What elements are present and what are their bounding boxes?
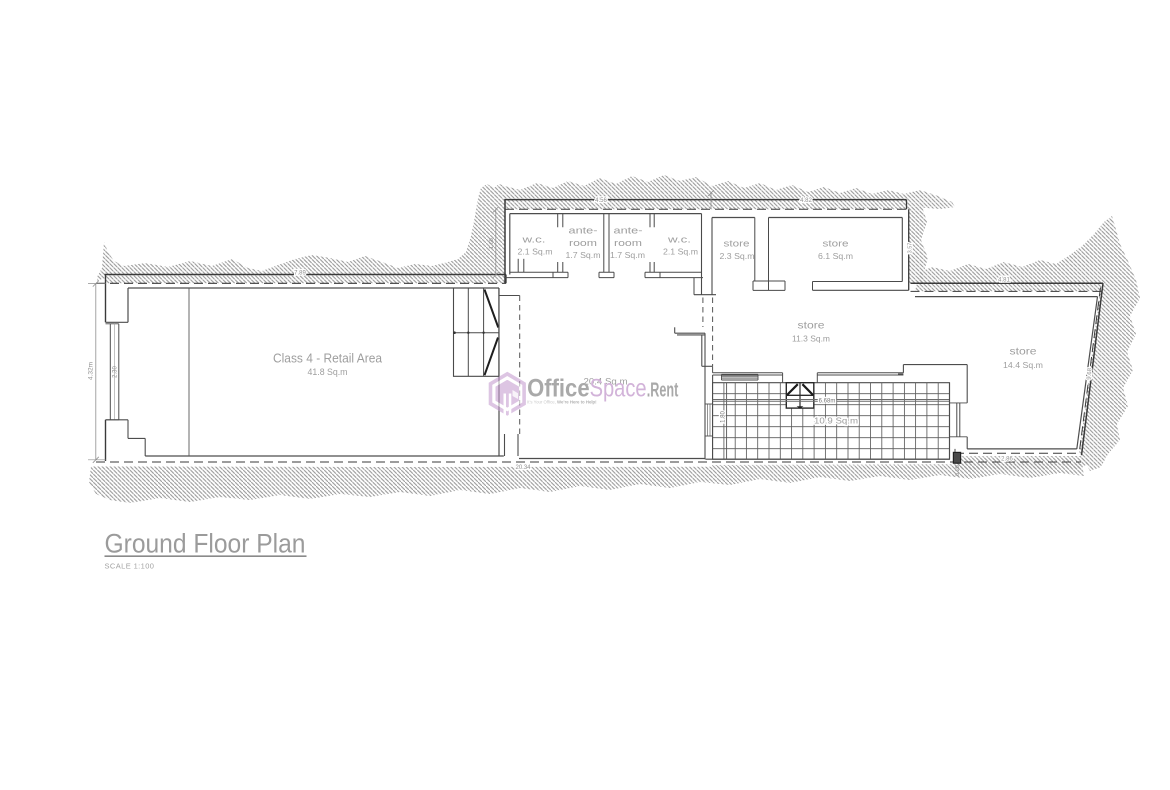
- svg-text:2.3 Sq.m: 2.3 Sq.m: [720, 252, 755, 261]
- svg-text:Office: Office: [527, 374, 590, 402]
- svg-text:store: store: [1010, 346, 1037, 358]
- svg-text:4.32m: 4.32m: [88, 362, 95, 380]
- svg-text:store: store: [823, 239, 849, 250]
- svg-text:4.81: 4.81: [998, 277, 1010, 283]
- svg-text:4.56: 4.56: [595, 198, 607, 204]
- svg-text:6.1 Sq.m: 6.1 Sq.m: [818, 252, 853, 261]
- svg-text:ante-: ante-: [569, 226, 598, 237]
- svg-text:1.60: 1.60: [489, 238, 495, 249]
- svg-text:2.1 Sq.m: 2.1 Sq.m: [663, 248, 698, 257]
- svg-text:9.68: 9.68: [1087, 367, 1094, 380]
- svg-text:It’s Your Office, We’re Here t: It’s Your Office, We’re Here to Help!: [527, 399, 597, 404]
- svg-text:1.7 Sq.m: 1.7 Sq.m: [610, 251, 645, 260]
- svg-text:SCALE 1:100: SCALE 1:100: [105, 561, 155, 570]
- svg-text:6.68m: 6.68m: [819, 398, 836, 404]
- svg-text:2.86: 2.86: [1001, 456, 1013, 462]
- svg-text:Ground Floor Plan: Ground Floor Plan: [105, 529, 306, 559]
- svg-text:room: room: [569, 238, 597, 249]
- svg-text:3.57: 3.57: [908, 243, 914, 254]
- svg-text:ante-: ante-: [614, 226, 643, 237]
- svg-text:4.82: 4.82: [800, 198, 812, 204]
- svg-text:2.1 Sq.m: 2.1 Sq.m: [518, 248, 553, 257]
- svg-text:1.7 Sq.m: 1.7 Sq.m: [566, 251, 601, 260]
- svg-text:14.4 Sq.m: 14.4 Sq.m: [1003, 360, 1043, 370]
- svg-text:Space: Space: [590, 374, 647, 402]
- svg-text:Class 4 - Retail Area: Class 4 - Retail Area: [273, 352, 382, 366]
- svg-text:.Rent: .Rent: [647, 379, 679, 401]
- svg-text:7.89: 7.89: [294, 271, 306, 277]
- svg-text:w.c.: w.c.: [667, 235, 691, 246]
- svg-text:11.3 Sq.m: 11.3 Sq.m: [792, 334, 830, 344]
- svg-text:room: room: [614, 238, 642, 249]
- svg-text:w.c.: w.c.: [521, 235, 545, 246]
- svg-text:store: store: [798, 320, 825, 332]
- svg-text:10.9 Sq.m: 10.9 Sq.m: [814, 417, 858, 426]
- svg-text:20.34: 20.34: [515, 465, 531, 471]
- svg-text:41.8 Sq.m: 41.8 Sq.m: [308, 367, 348, 377]
- svg-text:1.80: 1.80: [721, 411, 727, 423]
- svg-text:2.30: 2.30: [112, 366, 118, 378]
- svg-text:store: store: [724, 239, 750, 250]
- svg-text:0.20: 0.20: [955, 465, 961, 476]
